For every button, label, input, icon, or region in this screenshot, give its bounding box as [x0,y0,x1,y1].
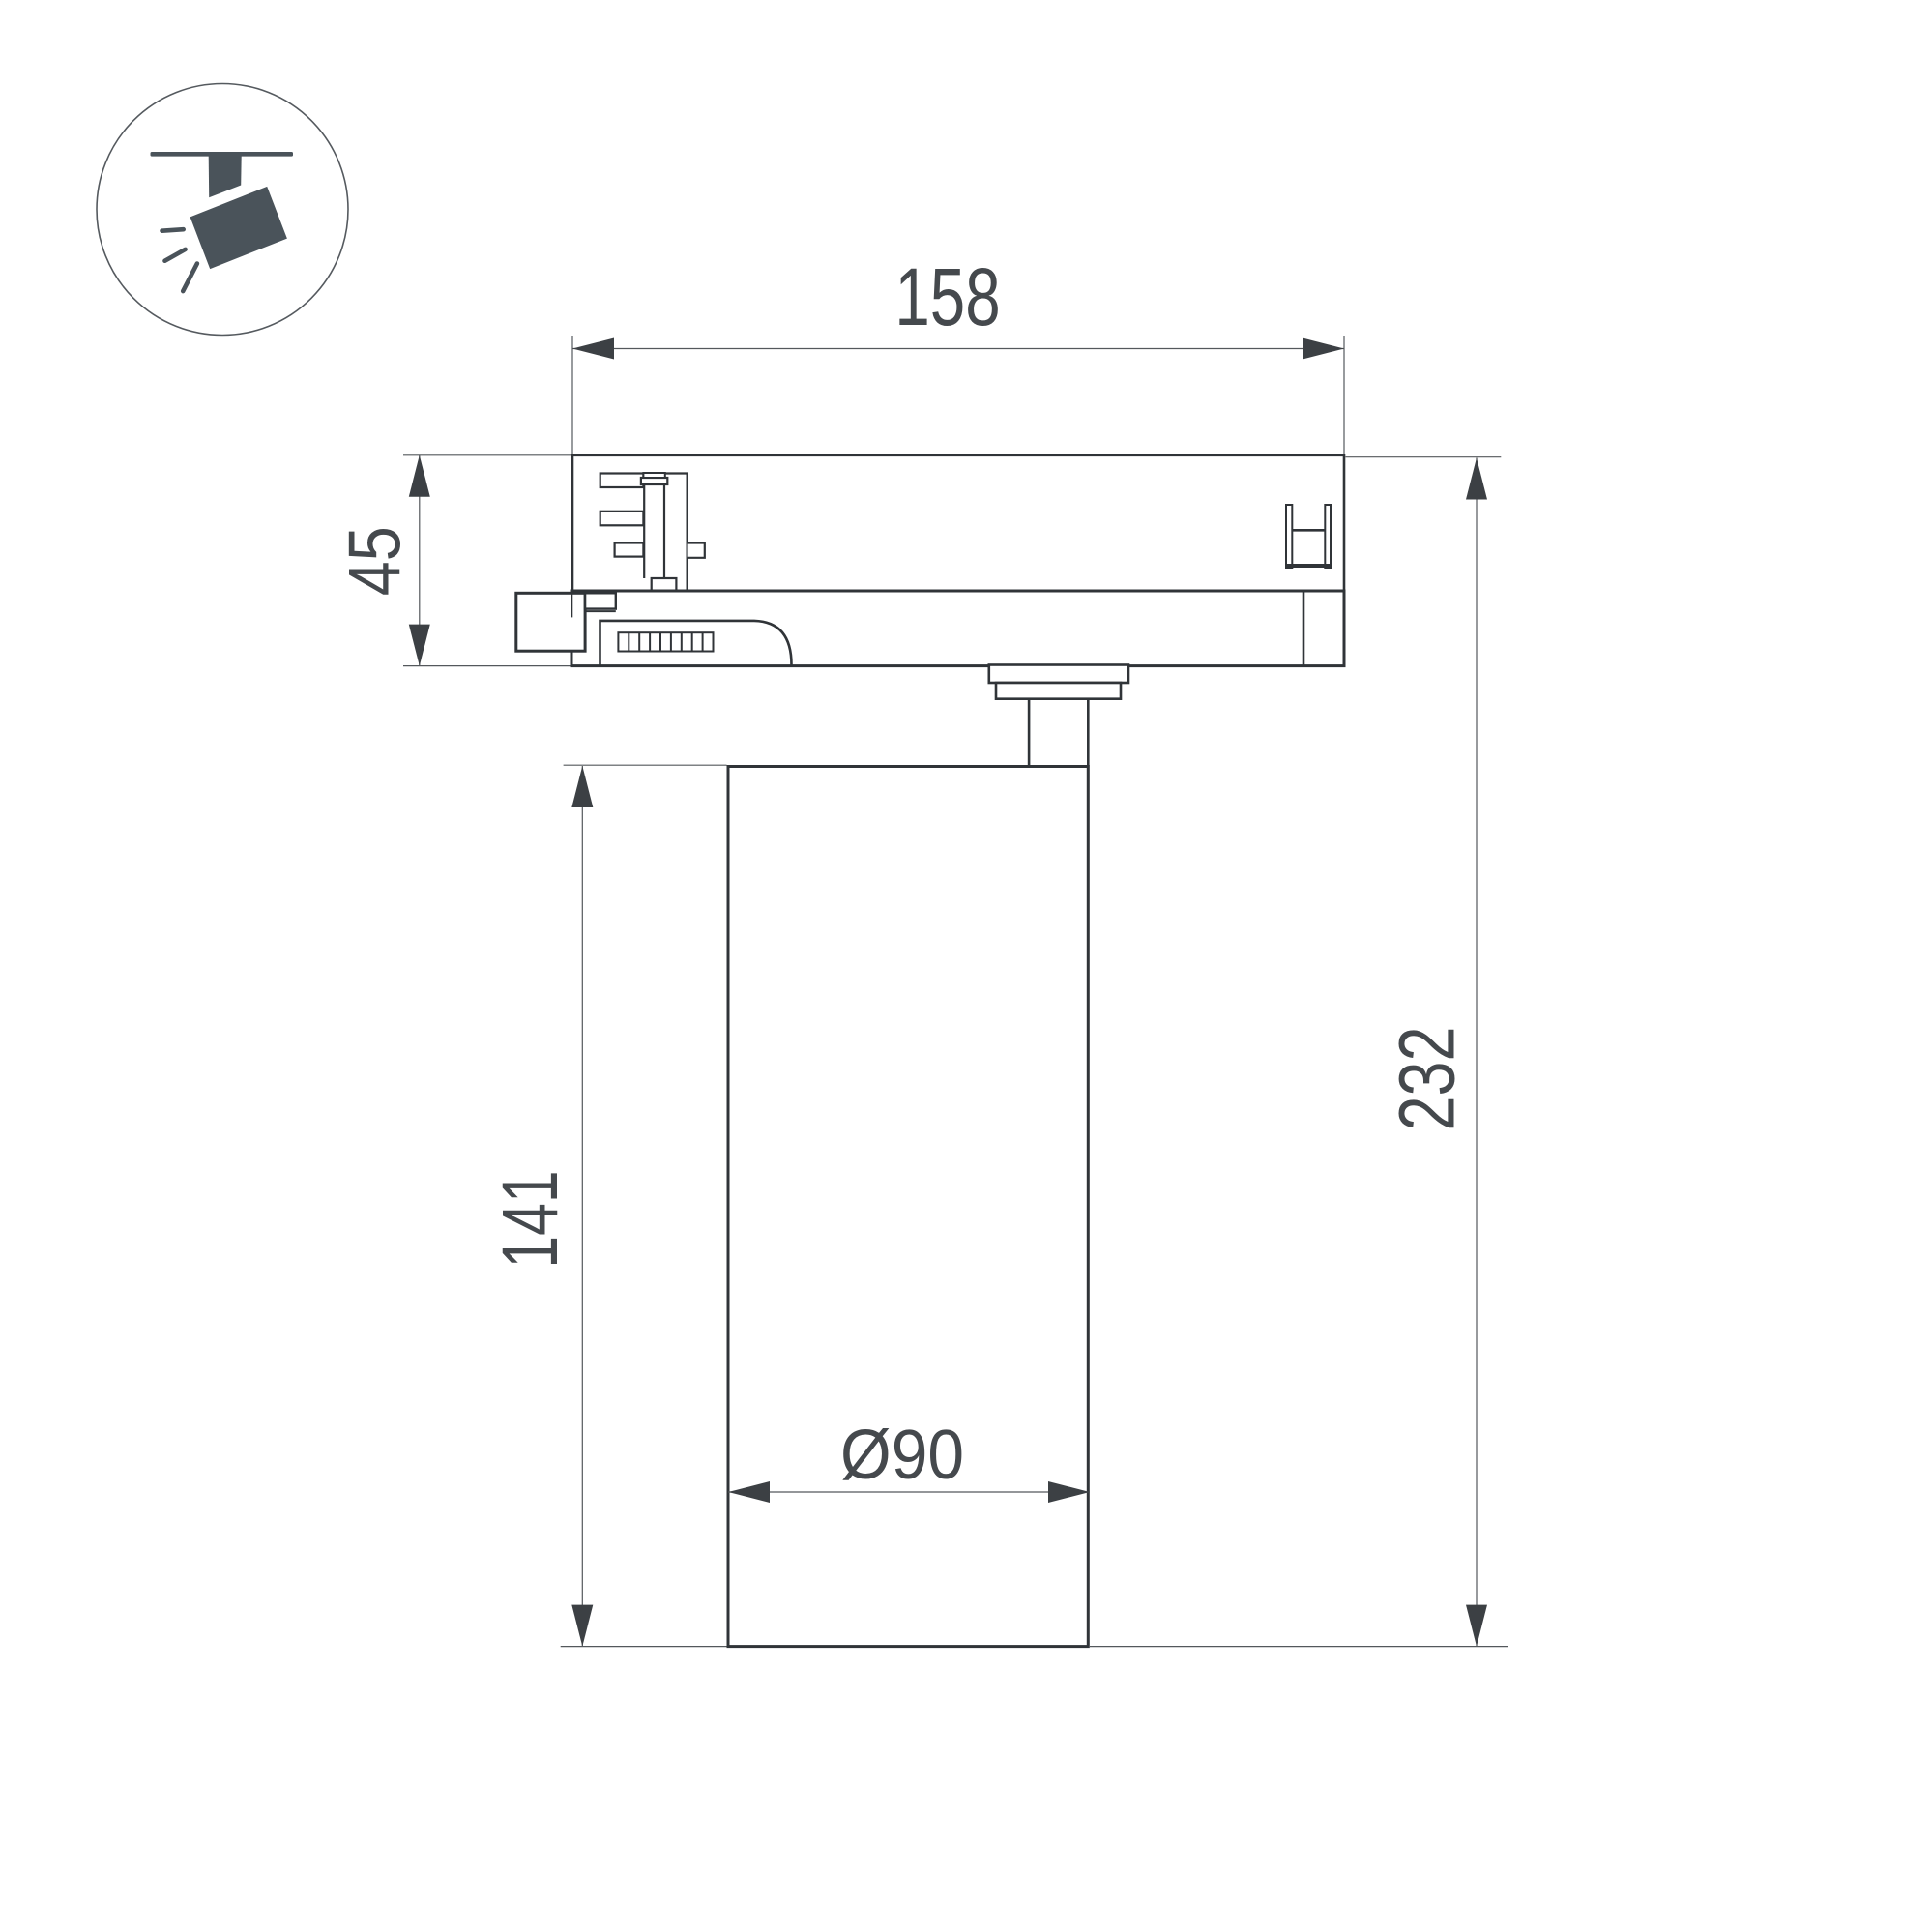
svg-text:141: 141 [486,1170,574,1268]
svg-text:45: 45 [333,526,415,596]
svg-text:Ø90: Ø90 [840,1416,964,1493]
svg-text:232: 232 [1382,1026,1471,1130]
svg-text:158: 158 [894,251,1000,342]
